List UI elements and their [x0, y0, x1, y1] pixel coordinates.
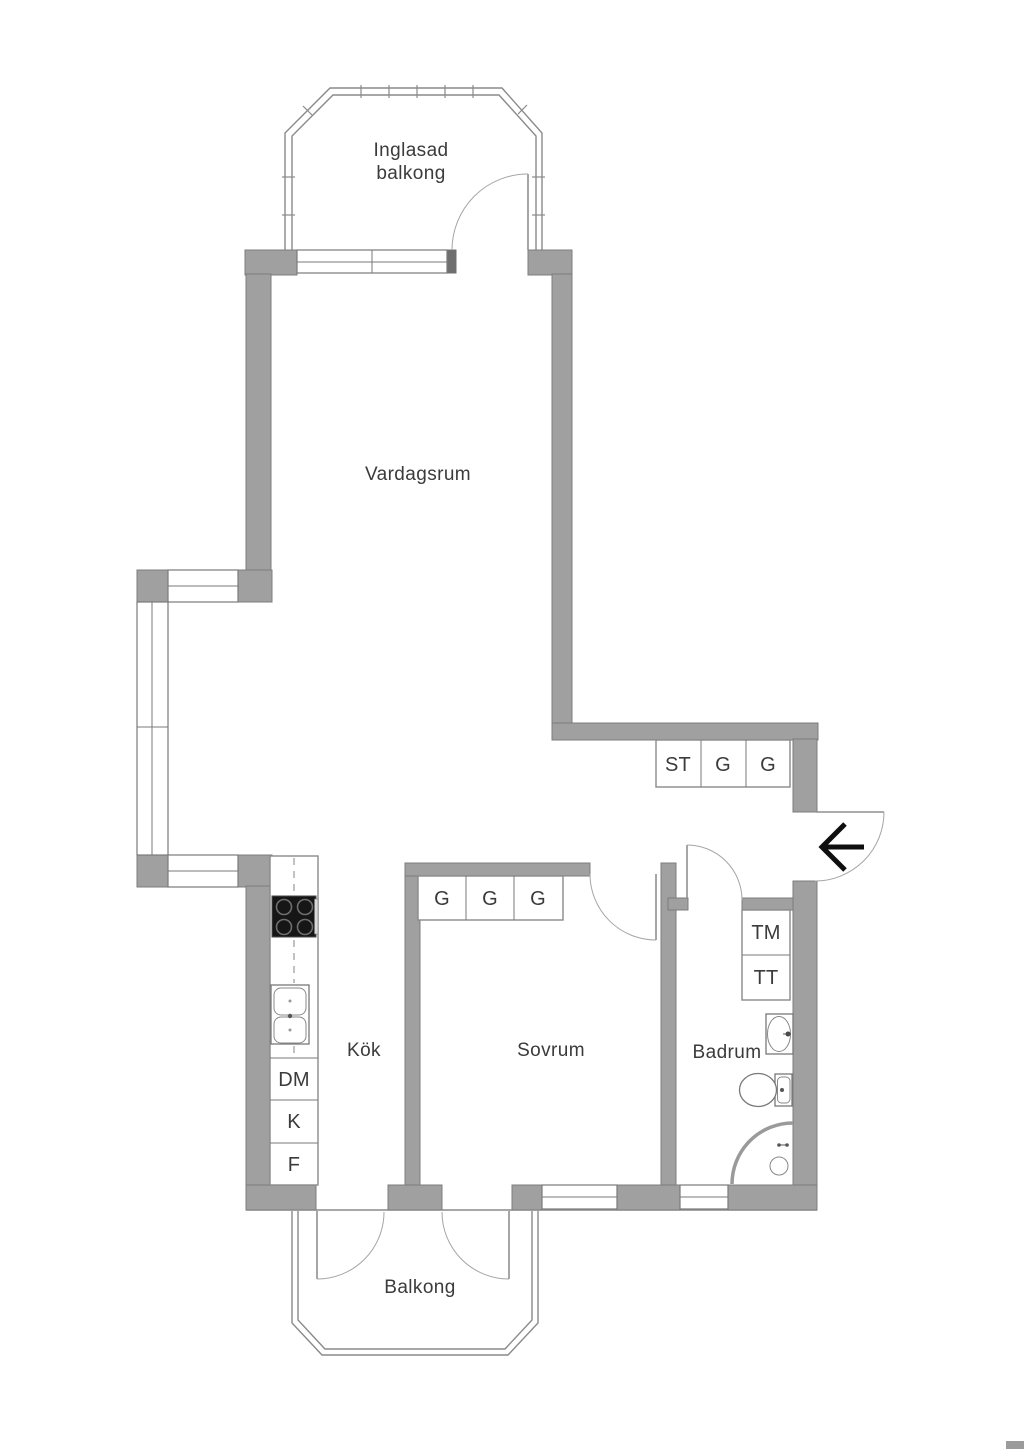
door-bedroom: [590, 874, 656, 940]
door-bathroom: [687, 845, 742, 900]
wall-bay-top-pier: [238, 570, 272, 602]
glazed-balcony-label-line1: Inglasad: [373, 140, 448, 161]
entrance-arrow-icon: [822, 824, 864, 870]
wall-bay-bottom-pier: [238, 855, 272, 887]
wall-livingroom-left: [246, 274, 271, 571]
closet-label: G: [530, 888, 546, 910]
window-bay-top: [168, 570, 238, 602]
closet-label: ST: [665, 754, 691, 776]
kitchen-label: Kök: [347, 1040, 381, 1061]
wall-bottom-pier: [512, 1185, 542, 1210]
toilet-icon: [740, 1074, 793, 1107]
glazed-balcony-label-line2: balkong: [376, 163, 445, 184]
wall-kitchen-left: [246, 886, 271, 1186]
wall-bathroom-door-jamb: [668, 898, 688, 910]
wall-balcony-door-jamb: [447, 250, 456, 273]
wall-hall-top: [552, 723, 818, 740]
wall-right-upper: [793, 739, 817, 812]
wall-top-right-corner: [528, 250, 572, 275]
window-bathroom: [680, 1185, 728, 1209]
wall-bottom-center-pier: [388, 1185, 442, 1210]
wall-bay-top-corner: [137, 570, 168, 602]
washing-machine-label: TM: [751, 922, 780, 944]
living-room-label: Vardagsrum: [365, 464, 471, 485]
door-kitchen-balcony: [317, 1211, 384, 1279]
watermark-fragment: [1006, 1441, 1024, 1449]
door-bedroom-balcony: [442, 1211, 509, 1279]
wall-bottom-window-pier: [617, 1185, 680, 1210]
wall-bedroom-bathroom-divider: [661, 863, 676, 1185]
bathroom-closets: TM TT: [742, 910, 790, 1000]
closet-label: G: [715, 754, 731, 776]
door-glazed-balcony: [452, 174, 528, 250]
wall-bathroom-top: [742, 898, 793, 910]
stove-icon: [272, 896, 318, 937]
balcony-label: Balkong: [384, 1277, 455, 1298]
window-livingroom-top: [297, 250, 447, 273]
freezer-label: F: [288, 1154, 300, 1176]
wall-bottom-right-corner: [728, 1185, 817, 1210]
bathroom-label: Badrum: [693, 1042, 762, 1063]
hall-closets: ST G G: [656, 740, 790, 787]
window-bay-left: [137, 602, 168, 855]
floorplan-canvas: ST G G G G G TM TT DM K F: [0, 0, 1024, 1449]
bedroom-closets: G G G: [418, 876, 563, 920]
floor-drain-icon: [770, 1157, 788, 1175]
wall-bedroom-top: [405, 863, 590, 876]
closet-label: G: [434, 888, 450, 910]
wall-bay-bottom-corner: [137, 855, 168, 887]
fridge-label: K: [287, 1111, 301, 1133]
wall-livingroom-right: [552, 274, 572, 740]
floorplan-svg: ST G G G G G TM TT DM K F: [0, 0, 1024, 1449]
balcony-railing: [246, 1210, 817, 1355]
bedroom-label: Sovrum: [517, 1040, 585, 1061]
window-bay-bottom: [168, 855, 238, 887]
kitchen-sink-icon: [271, 985, 309, 1044]
wall-kitchen-bedroom-divider: [405, 876, 420, 1185]
wall-bottom-left-corner: [246, 1185, 316, 1210]
closet-label: G: [760, 754, 776, 776]
shower-icon: [732, 1123, 793, 1184]
window-bedroom: [542, 1185, 617, 1209]
wall-right-lower: [793, 881, 817, 1210]
wall-top-left-corner: [245, 250, 297, 275]
tumble-dryer-label: TT: [754, 967, 779, 989]
closet-label: G: [482, 888, 498, 910]
washbasin-icon: [766, 1014, 793, 1054]
dishwasher-label: DM: [278, 1069, 310, 1091]
walls: [137, 250, 818, 1210]
